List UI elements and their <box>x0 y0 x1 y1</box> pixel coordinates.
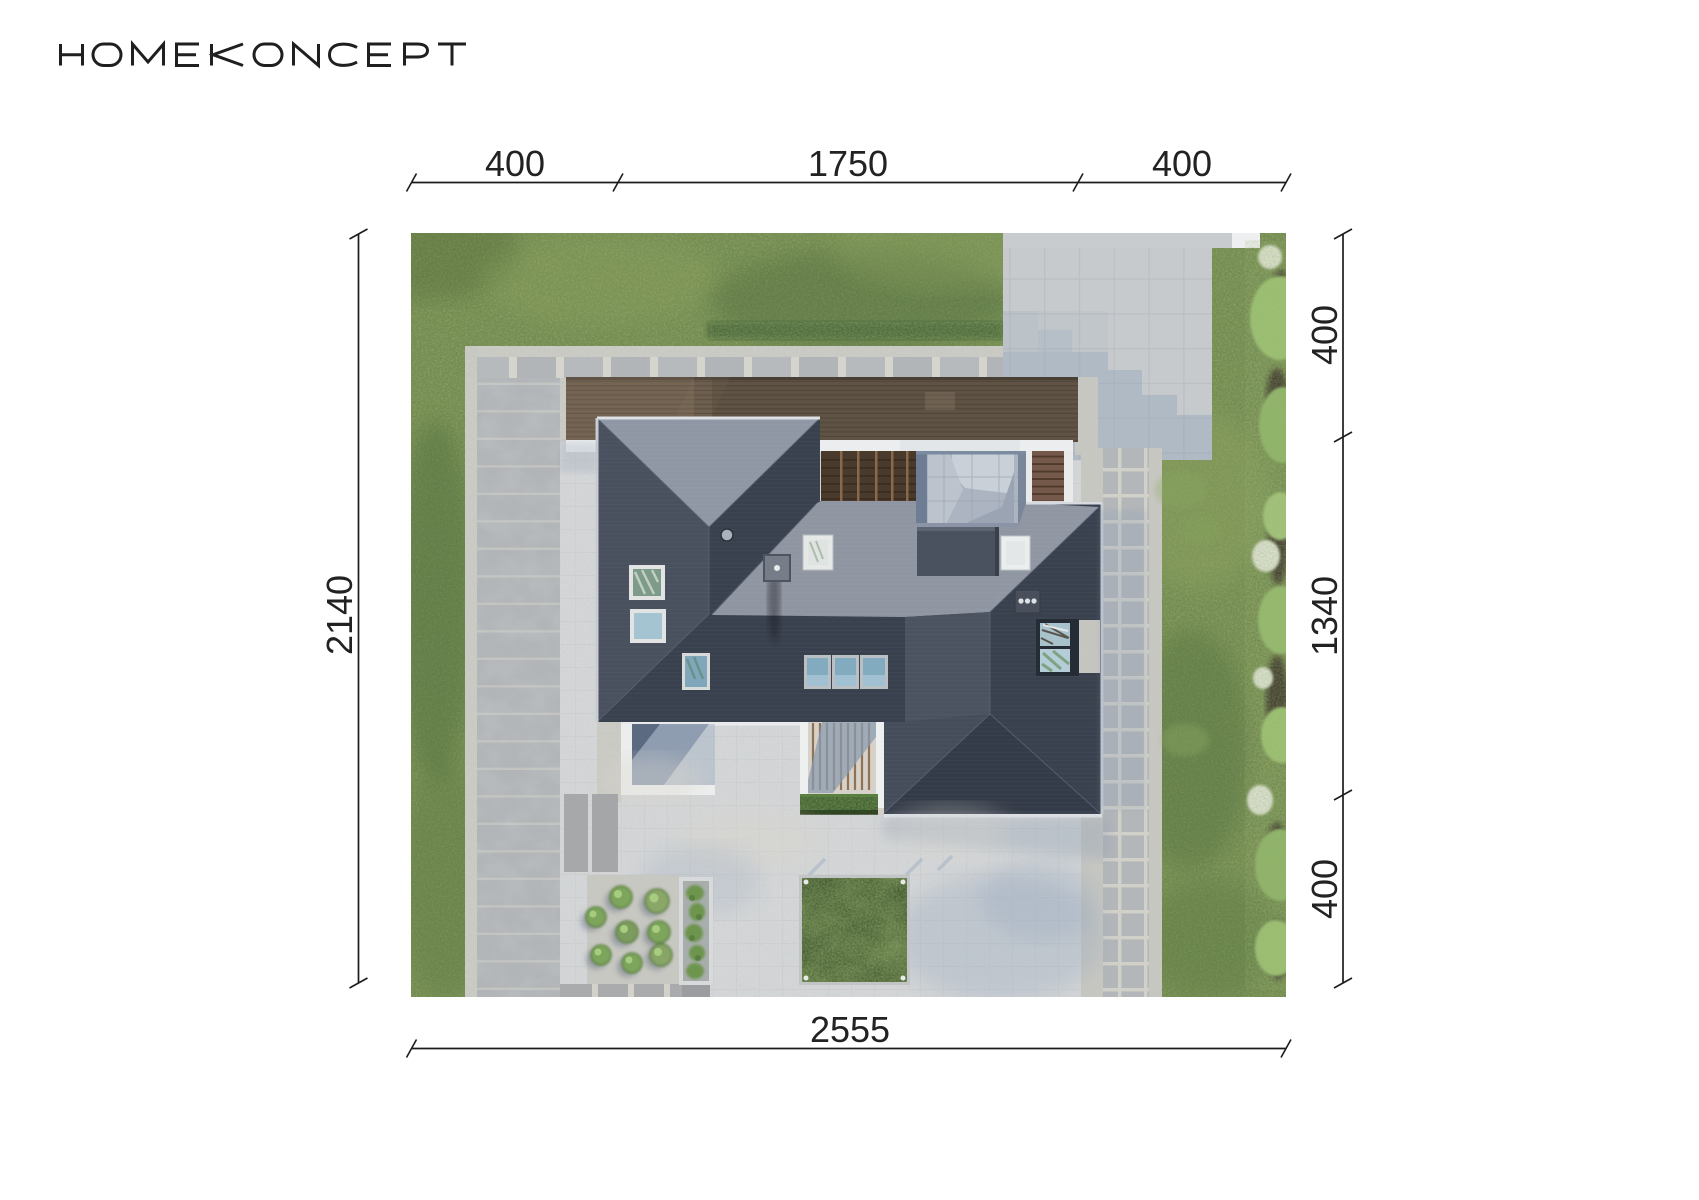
svg-text:2140: 2140 <box>319 575 360 655</box>
svg-text:400: 400 <box>1304 305 1345 365</box>
svg-text:400: 400 <box>485 143 545 184</box>
svg-text:2555: 2555 <box>810 1009 890 1050</box>
svg-text:1750: 1750 <box>808 143 888 184</box>
svg-text:1340: 1340 <box>1304 576 1345 656</box>
svg-text:400: 400 <box>1152 143 1212 184</box>
svg-text:400: 400 <box>1304 859 1345 919</box>
